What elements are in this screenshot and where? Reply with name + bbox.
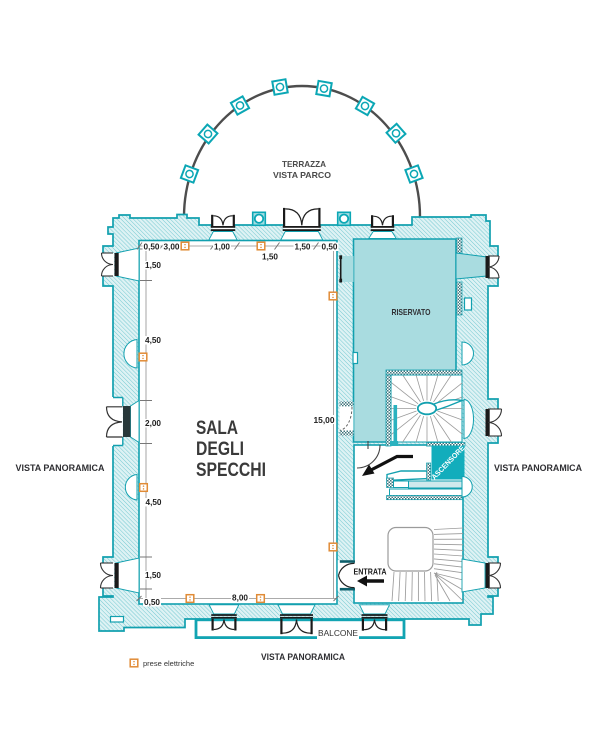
- svg-text:15,00: 15,00: [314, 416, 335, 425]
- svg-text:BALCONE: BALCONE: [318, 629, 358, 638]
- svg-text:RISERVATO: RISERVATO: [392, 307, 431, 317]
- svg-text:VISTA PARCO: VISTA PARCO: [273, 170, 331, 180]
- svg-text:1,00: 1,00: [214, 243, 230, 252]
- svg-text:1,50: 1,50: [145, 261, 161, 270]
- svg-text:SALA: SALA: [196, 418, 238, 439]
- svg-text:0,50: 0,50: [144, 598, 160, 607]
- svg-text:VISTA PANORAMICA: VISTA PANORAMICA: [16, 463, 105, 473]
- svg-text:1,50: 1,50: [145, 571, 161, 580]
- svg-text:VISTA PANORAMICA: VISTA PANORAMICA: [494, 463, 582, 473]
- svg-text:0,50: 0,50: [322, 243, 338, 252]
- svg-text:TERRAZZA: TERRAZZA: [282, 159, 326, 169]
- svg-text:1,50: 1,50: [295, 243, 311, 252]
- svg-text:3,00: 3,00: [164, 243, 180, 252]
- svg-text:0,50: 0,50: [144, 243, 160, 252]
- svg-text:4,50: 4,50: [145, 336, 161, 345]
- svg-text:2,00: 2,00: [145, 419, 161, 428]
- svg-text:VISTA PANORAMICA: VISTA PANORAMICA: [261, 652, 345, 662]
- svg-text:1,50: 1,50: [262, 253, 278, 262]
- svg-text:ENTRATA: ENTRATA: [354, 567, 387, 577]
- svg-text:DEGLI: DEGLI: [196, 439, 244, 460]
- svg-text:SPECCHI: SPECCHI: [196, 460, 266, 481]
- svg-text:prese elettriche: prese elettriche: [143, 659, 194, 668]
- svg-text:8,00: 8,00: [232, 594, 248, 603]
- svg-text:4,50: 4,50: [146, 498, 162, 507]
